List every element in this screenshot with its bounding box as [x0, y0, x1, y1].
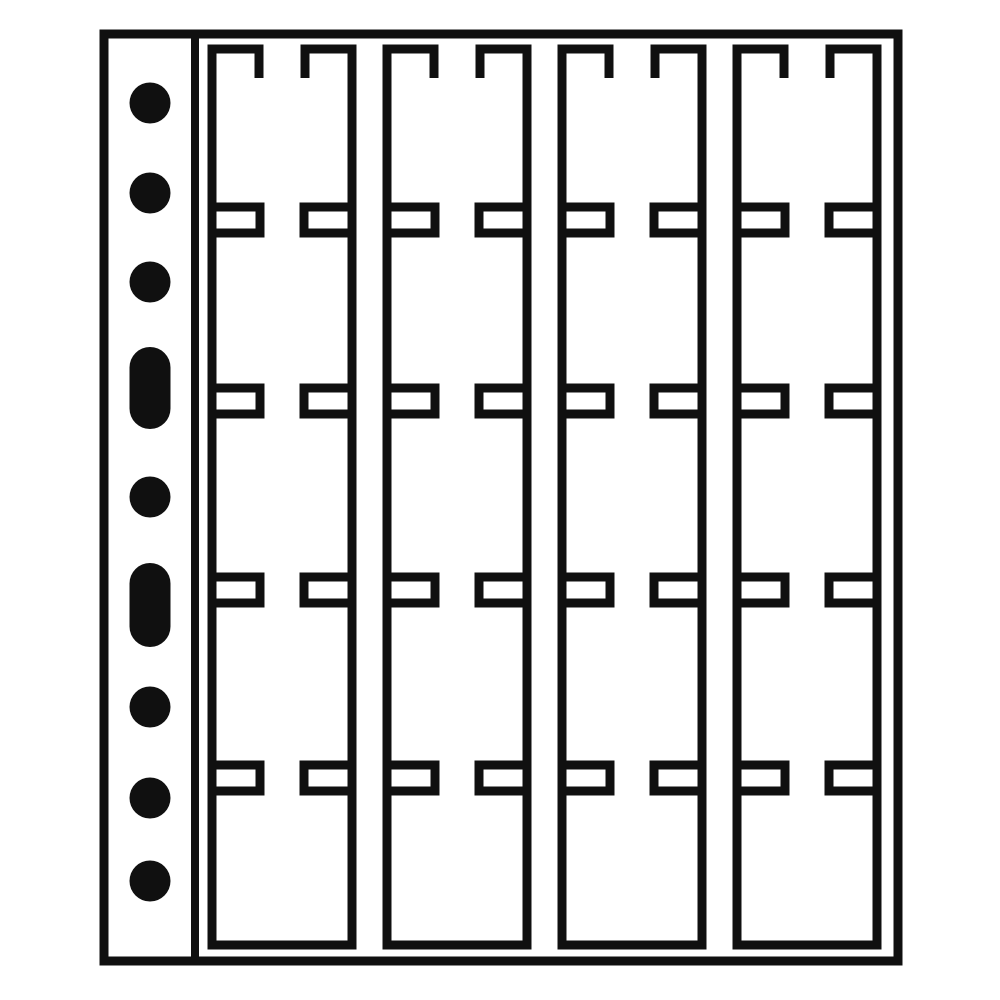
punch-hole-round [130, 687, 171, 728]
punch-hole-round [130, 778, 171, 819]
punch-hole-round [130, 861, 171, 902]
punch-hole-round [130, 173, 171, 214]
punch-hole-round [130, 83, 171, 124]
punch-hole-slotted [130, 347, 171, 429]
coin-album-sheet-illustration: Black line-art illustration of a transpa… [0, 0, 1000, 1000]
punch-hole-round [130, 477, 171, 518]
sheet-line-art: Black line-art illustration of a transpa… [0, 0, 1000, 1000]
punch-hole-slotted [130, 563, 171, 647]
punch-hole-round [130, 262, 171, 303]
